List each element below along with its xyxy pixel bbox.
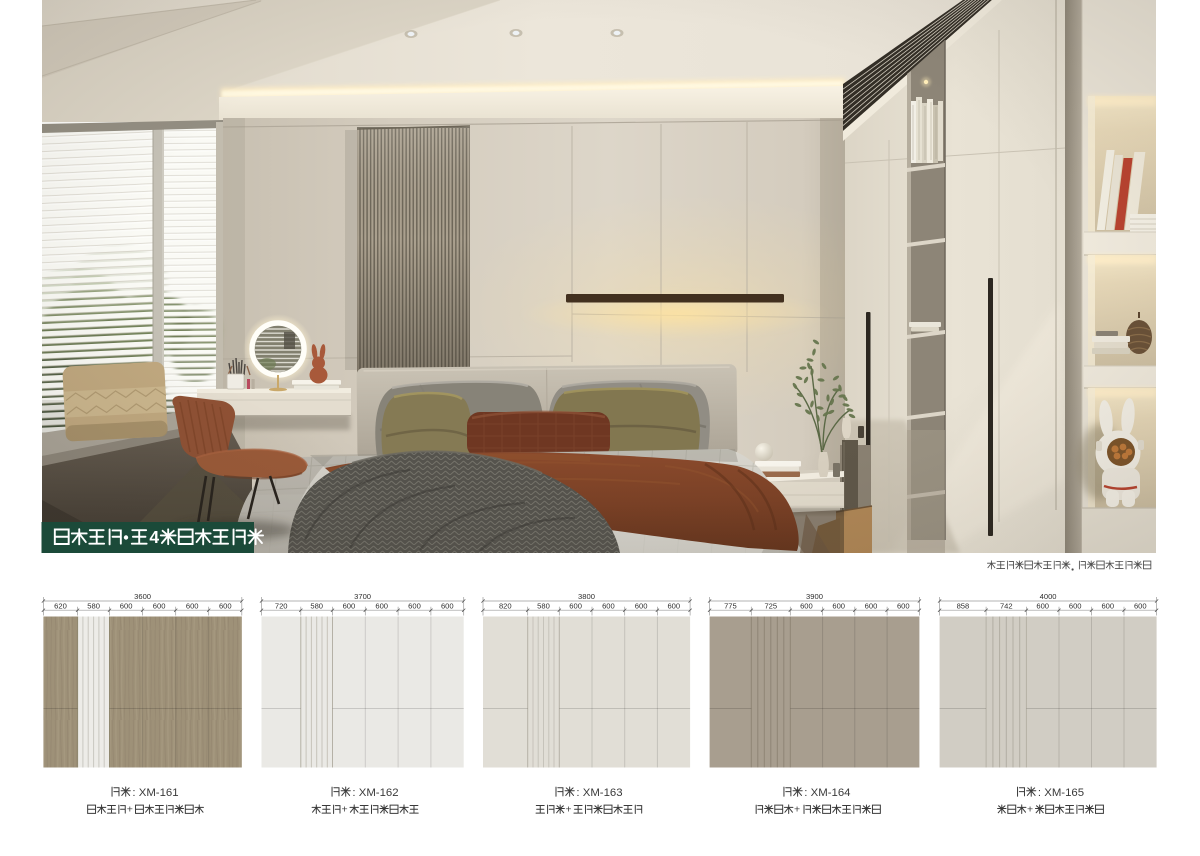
svg-text:+: + — [342, 804, 348, 816]
svg-text:600: 600 — [832, 601, 845, 610]
svg-text:600: 600 — [667, 601, 680, 610]
svg-text:4000: 4000 — [1040, 592, 1057, 601]
svg-text:: XM-161: : XM-161 — [132, 787, 178, 799]
svg-text:600: 600 — [186, 601, 199, 610]
svg-text:600: 600 — [219, 601, 232, 610]
svg-text:: XM-164: : XM-164 — [804, 787, 850, 799]
svg-text:: XM-162: : XM-162 — [352, 787, 398, 799]
svg-text:725: 725 — [764, 601, 777, 610]
svg-text:720: 720 — [275, 601, 288, 610]
svg-text:3600: 3600 — [134, 592, 151, 601]
svg-text:600: 600 — [1036, 601, 1049, 610]
svg-text:+: + — [1027, 804, 1033, 816]
svg-text:580: 580 — [537, 601, 550, 610]
svg-text:600: 600 — [343, 601, 356, 610]
svg-text:3800: 3800 — [578, 592, 595, 601]
svg-text:600: 600 — [569, 601, 582, 610]
svg-text:820: 820 — [499, 601, 512, 610]
svg-text:: XM-165: : XM-165 — [1038, 787, 1084, 799]
svg-text:600: 600 — [897, 601, 910, 610]
svg-text:3700: 3700 — [354, 592, 371, 601]
svg-text:3900: 3900 — [806, 592, 823, 601]
svg-text:620: 620 — [54, 601, 67, 610]
svg-text:+: + — [794, 804, 800, 816]
svg-text:600: 600 — [441, 601, 454, 610]
svg-text:600: 600 — [635, 601, 648, 610]
svg-text:600: 600 — [375, 601, 388, 610]
svg-text:858: 858 — [957, 601, 970, 610]
svg-text:600: 600 — [153, 601, 166, 610]
svg-text:600: 600 — [408, 601, 421, 610]
svg-text:600: 600 — [800, 601, 813, 610]
svg-text:600: 600 — [1101, 601, 1114, 610]
svg-text:600: 600 — [120, 601, 133, 610]
svg-text:+: + — [127, 804, 133, 816]
svg-text:600: 600 — [602, 601, 615, 610]
svg-text:: XM-163: : XM-163 — [576, 787, 622, 799]
svg-text:4: 4 — [149, 527, 159, 547]
svg-text:+: + — [565, 804, 571, 816]
svg-text:600: 600 — [1134, 601, 1147, 610]
svg-text:580: 580 — [87, 601, 100, 610]
svg-text:600: 600 — [1069, 601, 1082, 610]
svg-text:600: 600 — [865, 601, 878, 610]
svg-text:775: 775 — [724, 601, 737, 610]
svg-text:580: 580 — [310, 601, 323, 610]
svg-text:742: 742 — [1000, 601, 1013, 610]
